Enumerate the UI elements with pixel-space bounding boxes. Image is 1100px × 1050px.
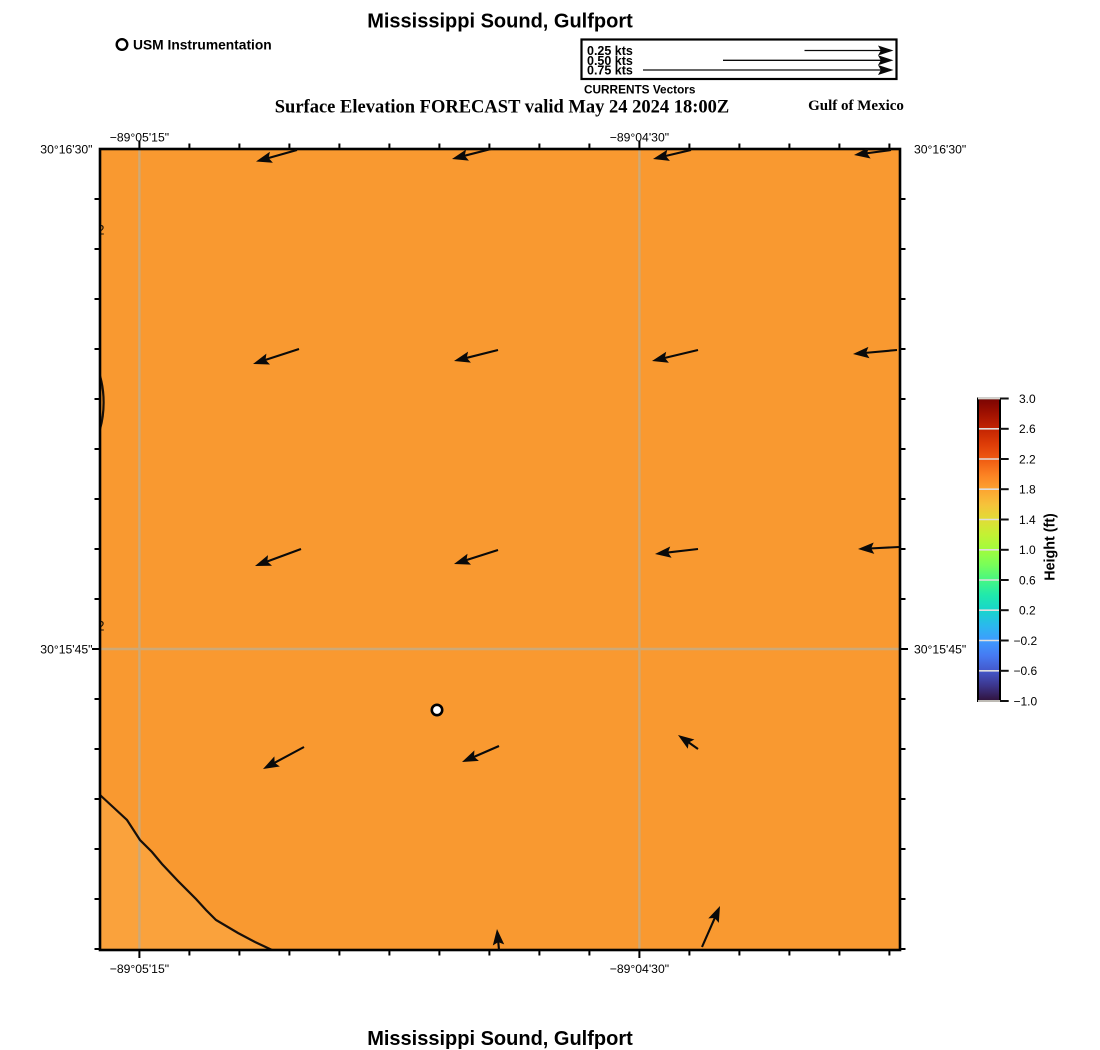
svg-text:Gulf of Mexico: Gulf of Mexico — [808, 98, 904, 114]
svg-text:1.0: 1.0 — [1019, 543, 1036, 557]
svg-text:2.6: 2.6 — [1019, 422, 1036, 436]
svg-text:−1.0: −1.0 — [1014, 694, 1038, 708]
svg-text:3.0: 3.0 — [1019, 392, 1036, 406]
svg-text:Mississippi Sound, Gulfport: Mississippi Sound, Gulfport — [367, 11, 633, 33]
svg-text:CURRENTS Vectors: CURRENTS Vectors — [584, 83, 696, 97]
svg-text:−89°05'15": −89°05'15" — [110, 131, 169, 145]
svg-text:1.8: 1.8 — [1019, 483, 1036, 497]
svg-text:Mississippi Sound, Gulfport: Mississippi Sound, Gulfport — [367, 1028, 633, 1050]
svg-text:Surface Elevation FORECAST val: Surface Elevation FORECAST valid May 24 … — [275, 98, 729, 118]
svg-text:0.2: 0.2 — [1019, 604, 1036, 618]
svg-text:30°15'45": 30°15'45" — [914, 643, 966, 657]
svg-text:−0.2: −0.2 — [1014, 634, 1038, 648]
svg-text:−0.6: −0.6 — [1014, 664, 1038, 678]
svg-text:0.6: 0.6 — [1019, 573, 1036, 587]
svg-text:Height (ft): Height (ft) — [1043, 513, 1059, 581]
svg-text:30°15'45": 30°15'45" — [40, 643, 92, 657]
svg-text:0.75 kts: 0.75 kts — [587, 64, 633, 78]
svg-text:USM Instrumentation: USM Instrumentation — [133, 38, 272, 53]
svg-text:−89°04'30": −89°04'30" — [610, 962, 669, 976]
svg-text:30°16'30": 30°16'30" — [40, 143, 92, 157]
svg-text:30°16'30": 30°16'30" — [914, 143, 966, 157]
svg-text:1.4: 1.4 — [1019, 513, 1036, 527]
svg-text:−89°05'15": −89°05'15" — [110, 962, 169, 976]
svg-text:−89°04'30": −89°04'30" — [610, 131, 669, 145]
svg-text:2.2: 2.2 — [1019, 452, 1036, 466]
